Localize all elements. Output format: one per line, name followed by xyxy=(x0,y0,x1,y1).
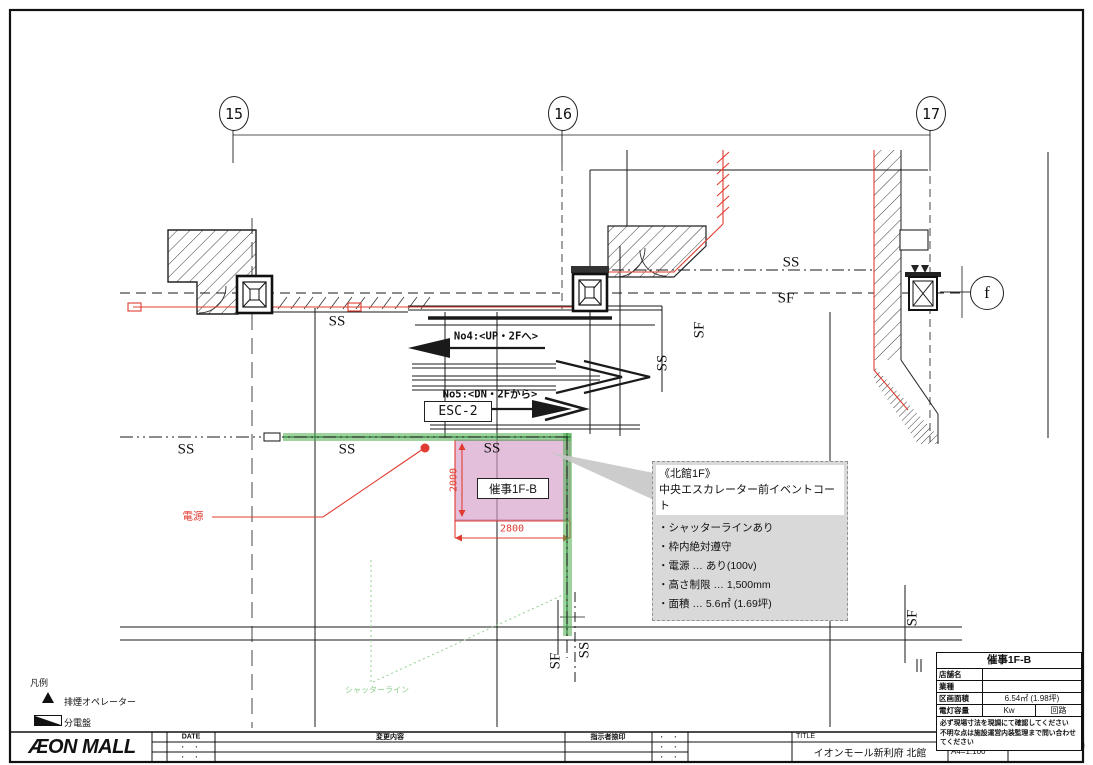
grid-bubble-15: 15 xyxy=(219,96,249,131)
escalator-id-label: ESC-2 xyxy=(438,404,477,419)
sf-label: SF xyxy=(778,291,795,308)
grid-bubble-f: f xyxy=(970,276,1004,310)
drawing-sheet: 15 16 17 f SS SS SS SS SS SF SS SF SF SS… xyxy=(0,0,1093,765)
ss-label: SS xyxy=(339,442,356,459)
event-area-label: 催事1F-B xyxy=(489,481,537,497)
legend-title: 凡例 xyxy=(30,676,48,689)
drawing-title: イオンモール新利府 北館 xyxy=(814,745,927,760)
revision-dots: ・ ・ xyxy=(659,733,682,742)
ss-label: SS xyxy=(329,314,346,331)
spec-warning-line1: 必ず現場寸法を現調にて確認してください xyxy=(940,719,1078,729)
aeon-mall-logo: ÆON MALL xyxy=(14,734,150,760)
spec-label-business: 業種 xyxy=(937,681,983,692)
notes-item: ・電源 … あり(100v) xyxy=(658,557,842,576)
notes-item: ・面積 … 5.6㎡ (1.69坪) xyxy=(658,595,842,614)
spec-row-business: 業種 xyxy=(937,681,1081,693)
spec-row-store: 店舗名 xyxy=(937,669,1081,681)
legend-item-smoke-operator: 排煙オペレーター xyxy=(64,695,136,708)
escalator-up-label: No4:<UP・2Fへ> xyxy=(454,329,538,344)
spec-header: 催事1F-B xyxy=(937,653,1081,669)
spec-label-capacity: 電灯容量 xyxy=(937,705,983,716)
notes-item: ・枠内絶対遵守 xyxy=(658,538,842,557)
revision-approver-header: 指示者捺印 xyxy=(591,732,626,742)
spec-row-capacity: 電灯容量 Kw 回路 xyxy=(937,705,1081,717)
escalator-id-box: ESC-2 xyxy=(424,401,492,422)
distribution-board-icon xyxy=(34,715,62,726)
sf-label: SF xyxy=(692,322,709,339)
ss-label: SS xyxy=(655,355,672,372)
smoke-operator-icon xyxy=(42,692,54,703)
spec-warning-line2: 不明な点は施設運営内装監理まで問い合わせてください xyxy=(940,729,1078,748)
dimension-2000: 2000 xyxy=(449,468,460,492)
revision-dots: ・ ・ xyxy=(659,743,682,752)
spec-value-area: 6.54㎡ (1.98坪) xyxy=(983,693,1081,704)
spec-row-area: 区画面積 6.54㎡ (1.98坪) xyxy=(937,693,1081,705)
grid-bubble-17: 17 xyxy=(916,96,946,131)
spec-value-store xyxy=(983,669,1081,680)
title-label: TITLE xyxy=(796,733,815,740)
revision-date-dots: ・ ・ xyxy=(180,753,203,762)
spec-warning: 必ず現場寸法を現調にて確認してください 不明な点は施設運営内装監理まで問い合わせ… xyxy=(937,717,1081,750)
revision-date-dots: ・ ・ xyxy=(180,743,203,752)
notes-item: ・シャッターラインあり xyxy=(658,519,842,538)
revision-change-header: 変更内容 xyxy=(376,732,404,742)
spec-table: 催事1F-B 店舗名 業種 区画面積 6.54㎡ (1.98坪) 電灯容量 Kw… xyxy=(936,652,1082,751)
columns xyxy=(237,265,941,313)
spec-label-area: 区画面積 xyxy=(937,693,983,704)
dimension-2800: 2800 xyxy=(500,524,524,535)
notes-heading: 《北館1F》 中央エスカレーター前イベントコート xyxy=(656,465,844,515)
spec-value-kw: Kw xyxy=(983,705,1035,716)
event-area-label-box: 催事1F-B xyxy=(477,478,549,499)
spec-value-circuit: 回路 xyxy=(1035,705,1081,716)
sf-label: SF xyxy=(905,610,922,627)
ss-label: SS xyxy=(484,441,501,458)
revision-date-header: DATE xyxy=(182,734,201,741)
ss-label: SS xyxy=(577,642,594,659)
shutter-line-label: シャッターライン xyxy=(345,685,409,696)
spec-value-business xyxy=(983,681,1081,692)
ss-label: SS xyxy=(178,442,195,459)
notes-box: 《北館1F》 中央エスカレーター前イベントコート ・シャッターラインあり ・枠内… xyxy=(652,461,848,621)
revision-dots: ・ ・ xyxy=(659,753,682,762)
spec-label-store: 店舗名 xyxy=(937,669,983,680)
notes-heading-line1: 《北館1F》 xyxy=(659,466,841,482)
power-label: 電源 xyxy=(183,509,204,524)
notes-heading-line2: 中央エスカレーター前イベントコート xyxy=(659,482,841,514)
legend-item-distribution-board: 分電盤 xyxy=(64,716,91,729)
sf-label: SF xyxy=(548,653,565,670)
notes-item: ・高さ制限 … 1,500mm xyxy=(658,576,842,595)
ss-label: SS xyxy=(783,255,800,272)
grid-bubble-16: 16 xyxy=(548,96,578,131)
escalator-down-label: No5:<DN・2Fから> xyxy=(443,387,538,402)
